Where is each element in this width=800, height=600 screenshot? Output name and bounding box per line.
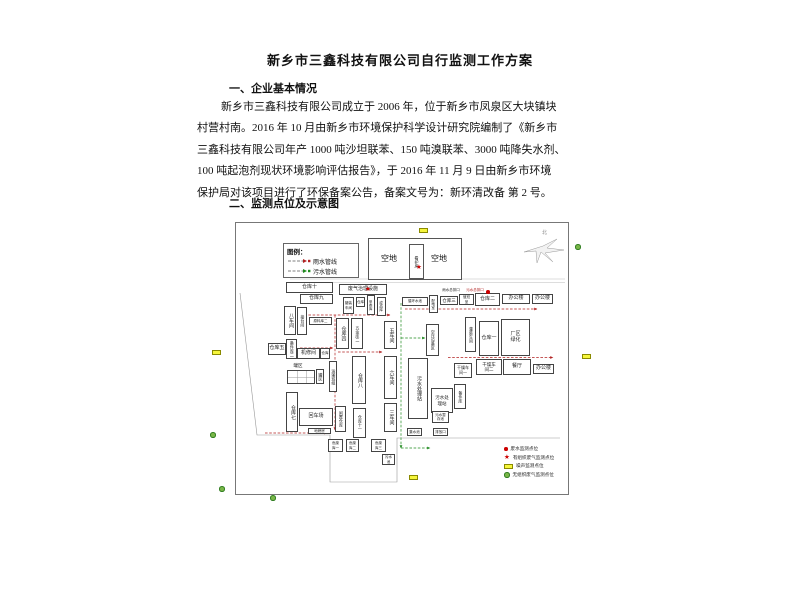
legend-row-sewage: 污水管线: [287, 266, 355, 276]
building-tank-area: [287, 370, 315, 384]
building-五车间: 五车间: [384, 321, 397, 349]
building-污水总排口: 污水总排口: [465, 288, 485, 293]
building-甲类库: 甲类库: [367, 295, 375, 315]
fugitive-gas-point-icon: [504, 472, 510, 478]
point-legend-label: 噪声监测点位: [516, 463, 544, 469]
noise-point-marker: [212, 350, 221, 355]
building-排放口: 排放口: [433, 428, 448, 436]
building-八车间: 八车间: [284, 306, 296, 335]
building-仓库三: 仓库三: [440, 296, 458, 305]
building-罐装车间: 罐装 车间: [343, 297, 354, 314]
building-仓库五: 仓库五: [268, 343, 286, 355]
legend-title: 图例：: [287, 246, 355, 256]
building-空压设备区: 空压设备区: [426, 324, 439, 356]
building-干燥车间一: 干燥车 间一: [454, 363, 472, 378]
building-仓库二: 仓库二: [475, 293, 500, 306]
building-回车场: 回车场: [299, 408, 333, 426]
building-罐区: 罐区: [291, 363, 305, 369]
section-heading-basic-info: 一、企业基本情况: [229, 80, 317, 96]
building-地磅房: 地磅房: [308, 428, 331, 434]
rain-line-icon: [287, 258, 311, 264]
building-配电室: 配电室: [429, 295, 438, 313]
noise-point-marker: [419, 228, 428, 233]
guard-house: 看护房: [409, 244, 424, 279]
noise-point-icon: [504, 464, 513, 469]
building-办公楼: 办公楼: [502, 294, 530, 304]
point-legend-row: 噪声监测点位: [504, 463, 554, 469]
building-原料库二: 原料库二: [309, 317, 332, 325]
sewage-line-icon: [287, 268, 311, 274]
building-六车间: 六车间: [384, 356, 397, 399]
building-餐厅: 餐厅: [503, 359, 531, 375]
building-三车间: 三车间: [384, 403, 397, 432]
page: { "doc": { "title": "新乡市三鑫科技有限公司自行监测工作方案…: [0, 0, 800, 600]
building-仓库八: 仓库八: [352, 356, 366, 404]
building-五金库二: 五金库二: [351, 318, 363, 349]
fugitive-gas-point-marker: [219, 486, 225, 492]
building-成品库: 成品库: [377, 297, 386, 316]
building-集水池: 集水池: [407, 428, 422, 436]
building-仓库九: 仓库九: [300, 294, 333, 304]
noise-point-marker: [582, 354, 591, 359]
building-值班室: 值班 室: [459, 294, 474, 305]
page-title: 新乡市三鑫科技有限公司自行监测工作方案: [0, 50, 800, 69]
building-厂区绿化: 厂区 绿化: [501, 319, 530, 356]
stack-gas-point-marker: ★: [365, 286, 371, 293]
building-闲置仓库: 闲置仓库: [335, 406, 346, 432]
paragraph-line: 新乡市三鑫科技有限公司成立于 2006 年，位于新乡市凤泉区大块镇块: [197, 97, 611, 118]
building-污水处理站: 污水处理站: [408, 358, 428, 419]
building-仓库七: 仓库七: [286, 392, 298, 432]
stack-gas-point-icon: ★: [504, 454, 510, 461]
legend-row-rain: 雨水管线: [287, 256, 355, 266]
building-运输班组: 运输班组: [329, 361, 337, 392]
building-雨水总排口: 雨水总排口: [439, 288, 463, 293]
building-污水池: 污水 池: [382, 454, 395, 465]
noise-point-marker: [409, 475, 418, 480]
open-land-right-label: 空地: [431, 253, 447, 264]
point-legend-row: ★有组织废气监测点位: [504, 455, 554, 461]
point-legend-label: 废水监测点位: [511, 446, 539, 452]
building-仓库十一: 仓库十一: [353, 408, 366, 438]
fugitive-gas-point-marker: [210, 432, 216, 438]
building-仓库一: 仓库一: [479, 321, 499, 356]
building-接台间: 接台间: [297, 307, 307, 335]
building-危废库三: 危废 库三: [371, 439, 386, 452]
building-罐区: 罐区: [316, 369, 324, 384]
building-备件库: 备件库: [454, 384, 466, 409]
open-land-block: 空地 看护房 空地: [368, 238, 462, 280]
building-备件库二: 备件库二: [286, 339, 297, 359]
building-仓库十: 仓库十: [286, 282, 333, 293]
building-办公楼: 办公楼: [533, 364, 554, 374]
paragraph-line: 100 吨起泡剂现状环境影响评估报告》，于 2016 年 11 月 9 日由新乡…: [197, 161, 611, 182]
section-heading-monitoring-points: 二、监测点位及示意图: [229, 195, 339, 211]
wastewater-point-marker: [486, 290, 490, 294]
legend-sewage-label: 污水管线: [313, 267, 337, 276]
building-污水处理站: 污水处 理站: [431, 388, 453, 413]
north-label: 北: [542, 229, 547, 236]
building-仓库: 仓库: [356, 297, 365, 307]
point-legend-row: 无组织废气监测点位: [504, 472, 554, 478]
company-intro-paragraph: 新乡市三鑫科技有限公司成立于 2006 年，位于新乡市凤泉区大块镇块 村营村南。…: [197, 97, 611, 204]
building-办公楼: 办公楼: [532, 294, 553, 304]
building-污水暂存池: 污水暂 存池: [432, 411, 449, 423]
building-干燥车间二: 干燥车 间二: [476, 359, 502, 375]
fugitive-gas-point-marker: [270, 495, 276, 501]
building-机修间: 机修间: [297, 348, 320, 359]
legend-rain-label: 雨水管线: [313, 257, 337, 266]
building-危废库一: 危废 库一: [328, 439, 343, 452]
building-废气治理设施: 废气治理设施: [339, 284, 387, 295]
pipeline-legend: 图例： 雨水管线 污水管线: [283, 243, 359, 278]
building-灌装车间: 灌装车间: [465, 317, 476, 352]
paragraph-line: 村营村南。2016 年 10 月由新乡市环境保护科学设计研究院编制了《新乡市: [197, 118, 611, 139]
open-land-left-label: 空地: [381, 253, 397, 264]
paragraph-line: 三鑫科技有限公司年产 1000 吨沙坦联苯、150 吨溴联苯、3000 吨降失水…: [197, 140, 611, 161]
point-legend-label: 无组织废气监测点位: [513, 472, 554, 478]
building-循环水池: 循环水池: [402, 297, 428, 306]
point-legend-label: 有组织废气监测点位: [513, 455, 554, 461]
building-仓库四: 仓库四: [336, 318, 349, 349]
wastewater-point-icon: [504, 447, 508, 451]
site-plan-diagram: 图例： 雨水管线 污水管线 空地 看护房 空地 北 废水监测点位★有组织废气监测…: [205, 218, 600, 508]
monitoring-point-legend: 废水监测点位★有组织废气监测点位噪声监测点位无组织废气监测点位: [504, 446, 554, 478]
point-legend-row: 废水监测点位: [504, 446, 554, 452]
fugitive-gas-point-marker: [575, 244, 581, 250]
building-危废库二: 危废 库二: [346, 439, 359, 452]
building-仓库: 仓库: [320, 348, 330, 359]
stack-gas-point-marker: ★: [416, 264, 422, 271]
